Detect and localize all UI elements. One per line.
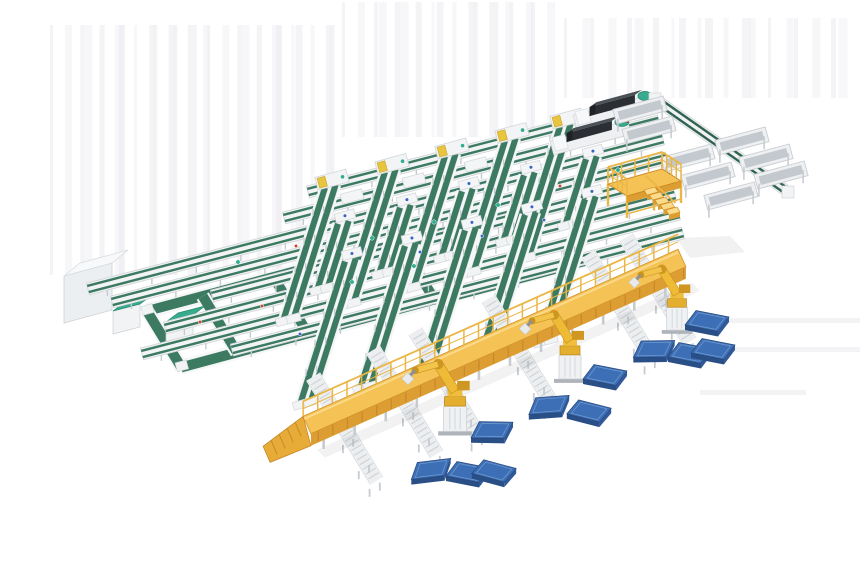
sensor-dot — [470, 221, 473, 224]
floor-artifact — [173, 25, 178, 275]
floor-artifact — [153, 25, 157, 275]
scene-svg — [0, 0, 860, 580]
floor-artifact — [794, 18, 798, 98]
sensor-dot — [558, 184, 561, 187]
floor-artifact — [432, 2, 435, 137]
floor-artifact — [358, 2, 365, 137]
floor-artifact — [379, 2, 387, 137]
floor-artifact — [609, 18, 617, 98]
dark-machine-nose — [590, 104, 596, 116]
floor-artifact — [242, 25, 250, 275]
sensor-dot — [412, 264, 416, 268]
floor-artifact — [374, 2, 378, 137]
sensor-dot — [198, 320, 201, 323]
sensor-dot — [341, 175, 345, 179]
sensor-dot — [410, 236, 413, 239]
floor-artifact — [698, 18, 702, 98]
floor-artifact — [65, 25, 72, 275]
sensor-dot — [294, 244, 297, 247]
floor-artifact — [583, 18, 590, 98]
floor-artifact — [627, 18, 632, 98]
robot-counterweight — [679, 284, 690, 293]
sensor-dot — [530, 205, 533, 208]
floor-artifact — [84, 25, 92, 275]
sensor-dot — [350, 252, 353, 255]
floor-artifact — [813, 18, 821, 98]
sensor-dot — [260, 304, 263, 307]
floor-artifact — [453, 2, 457, 137]
floor-artifact — [700, 390, 806, 395]
sensor-dot — [401, 159, 405, 163]
walkway-ramp — [263, 416, 311, 462]
sensor-dot — [236, 260, 240, 264]
sensor-dot — [591, 150, 594, 153]
robot-base — [668, 299, 687, 308]
floor-artifact — [653, 18, 659, 98]
sorting-elbow — [782, 186, 794, 198]
floor-artifact — [787, 18, 794, 98]
sensor-dot — [616, 168, 620, 172]
floor-artifact — [510, 2, 513, 137]
floor-artifact — [705, 18, 713, 98]
floor-artifact — [768, 18, 771, 98]
sensor-dot — [350, 280, 354, 284]
factory-render — [0, 0, 860, 580]
sensor-dot — [521, 128, 525, 132]
robot-baseplate — [662, 330, 692, 334]
floor-artifact — [100, 25, 105, 275]
floor-artifact — [531, 2, 535, 137]
sensor-dot — [496, 203, 500, 207]
floor-artifact — [679, 18, 686, 98]
floor-artifact — [750, 18, 756, 98]
sensor-dot — [432, 220, 436, 224]
floor-artifact — [119, 25, 125, 275]
floor-shadow — [676, 236, 745, 258]
sensor-dot — [370, 236, 374, 240]
sensor-dot — [405, 198, 408, 201]
floor-artifact — [839, 18, 848, 98]
floor-artifact — [134, 25, 137, 275]
floor-artifact — [222, 25, 229, 275]
floor-artifact — [473, 2, 478, 137]
sensor-dot — [467, 182, 470, 185]
floor-artifact — [50, 25, 53, 275]
floor-artifact — [635, 18, 644, 98]
floor-artifact — [564, 18, 567, 98]
sensor-dot — [529, 166, 532, 169]
robot-base — [445, 397, 466, 406]
sensor-dot — [461, 144, 465, 148]
floor-artifact — [80, 25, 84, 275]
floor-artifact — [590, 18, 594, 98]
robot-counterweight — [572, 331, 584, 340]
robot-baseplate — [438, 431, 472, 435]
robot-baseplate — [554, 379, 586, 383]
robot-base — [560, 346, 580, 355]
sensor-dot — [542, 218, 545, 221]
floor-artifact — [489, 2, 498, 137]
floor-artifact — [437, 2, 444, 137]
sensor-dot — [418, 250, 421, 253]
floor-artifact — [416, 2, 422, 137]
sensor-dot — [480, 234, 483, 237]
blue-panel-side — [633, 357, 667, 363]
floor-artifact — [237, 25, 241, 275]
sensor-dot — [343, 214, 346, 217]
floor-artifact — [207, 25, 210, 275]
floor-artifact — [672, 18, 675, 98]
floor-artifact — [724, 18, 729, 98]
floor-artifact — [831, 18, 836, 98]
sensor-dot — [590, 190, 593, 193]
floor-artifact — [342, 2, 345, 137]
robot-counterweight — [457, 381, 470, 390]
floor-artifact — [395, 2, 400, 137]
floor-artifact — [400, 2, 409, 137]
sensor-dot — [298, 332, 301, 335]
floor-artifact — [188, 25, 197, 275]
